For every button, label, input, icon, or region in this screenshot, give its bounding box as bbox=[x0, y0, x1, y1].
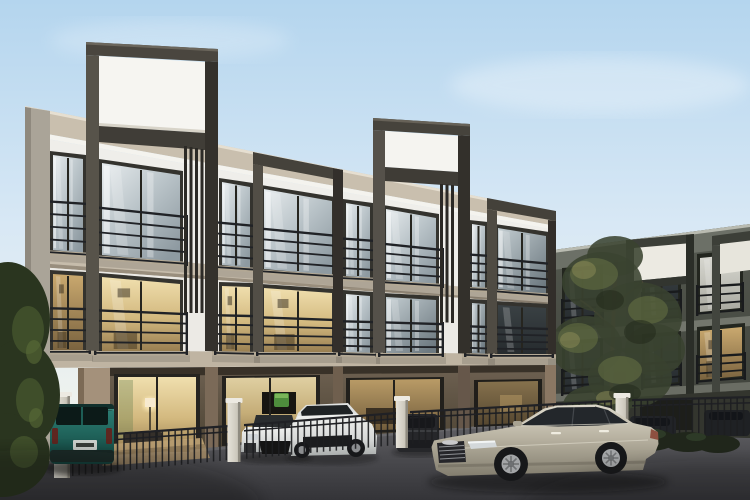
balcony-shadow bbox=[336, 357, 380, 365]
fence-bar bbox=[226, 427, 228, 460]
window-unit bbox=[43, 270, 93, 361]
coupe-grille bbox=[259, 441, 291, 454]
window-unit bbox=[376, 293, 446, 364]
fence-bar bbox=[730, 399, 732, 436]
louver-fins bbox=[440, 184, 454, 323]
sign-panel bbox=[385, 131, 458, 172]
fence-bar bbox=[736, 398, 738, 435]
sedan-mirror bbox=[513, 421, 522, 426]
fence-bar bbox=[278, 423, 280, 456]
fence-bar bbox=[272, 424, 274, 457]
railing-post bbox=[186, 312, 188, 355]
bg-sign-panel bbox=[634, 244, 686, 282]
interior-furniture bbox=[114, 333, 137, 349]
fence-bar bbox=[653, 401, 655, 433]
balcony-shadow bbox=[254, 357, 342, 364]
curtain bbox=[360, 207, 362, 275]
fence-bar bbox=[194, 429, 196, 463]
fence-bar bbox=[412, 413, 414, 444]
interior-picture bbox=[118, 288, 130, 297]
window-unit bbox=[376, 205, 446, 295]
architectural-rendering: Architectural rendering of a modern thre… bbox=[0, 0, 750, 500]
sedan-brand-rings bbox=[442, 440, 458, 445]
fence-bar bbox=[187, 430, 189, 464]
fence-bar bbox=[666, 400, 668, 433]
railing-bar bbox=[94, 352, 188, 354]
railing-post bbox=[696, 285, 698, 316]
curtain bbox=[303, 198, 309, 271]
fence-bar bbox=[316, 420, 318, 452]
curtain bbox=[70, 159, 72, 250]
fence-bar bbox=[692, 400, 694, 435]
window-unit bbox=[92, 273, 190, 362]
pillar-shade bbox=[238, 402, 241, 462]
fence-bar bbox=[219, 428, 221, 461]
railing-post bbox=[744, 352, 746, 380]
fence-bar bbox=[660, 400, 662, 433]
curtain bbox=[347, 296, 349, 350]
window-unit bbox=[254, 185, 342, 286]
fence-bar bbox=[342, 418, 344, 450]
fence-bar bbox=[685, 400, 687, 434]
fence-bar bbox=[380, 415, 382, 446]
interior-picture bbox=[278, 299, 289, 308]
fence-bar bbox=[711, 399, 713, 435]
fence-bar bbox=[704, 399, 706, 434]
fence-bar bbox=[200, 429, 202, 463]
curtain bbox=[415, 301, 419, 351]
fence-bar bbox=[206, 429, 208, 463]
fence-bar bbox=[698, 399, 700, 434]
curtain bbox=[238, 187, 240, 265]
sedan-door-handle bbox=[599, 430, 609, 432]
railing-bar bbox=[256, 353, 340, 355]
cloud bbox=[450, 57, 750, 113]
curtain bbox=[387, 299, 391, 351]
railing-bar bbox=[490, 355, 554, 357]
curtain bbox=[472, 305, 473, 351]
fence-bar bbox=[431, 412, 433, 443]
fence-bar bbox=[418, 413, 420, 444]
van-taillight bbox=[106, 428, 112, 444]
fence-bar bbox=[438, 412, 440, 443]
railing-bar bbox=[378, 354, 444, 356]
balcony-shadow bbox=[488, 359, 556, 366]
railing-post bbox=[442, 322, 444, 357]
fence-bar bbox=[329, 419, 331, 451]
curtain bbox=[480, 306, 481, 352]
window-unit bbox=[488, 301, 556, 365]
window-unit bbox=[488, 224, 556, 305]
fence-bar bbox=[374, 416, 376, 447]
fence-bar bbox=[724, 399, 726, 435]
fence-bar bbox=[444, 411, 446, 442]
sedan-door-handle bbox=[551, 432, 561, 434]
fence-bar bbox=[252, 425, 254, 458]
fence-bar bbox=[425, 412, 427, 443]
fence-bar bbox=[679, 400, 681, 434]
fence-pillar bbox=[394, 396, 410, 448]
railing-post bbox=[561, 369, 563, 396]
balcony-shadow bbox=[92, 356, 190, 363]
railing-bar bbox=[45, 351, 91, 353]
fence-bar bbox=[174, 431, 176, 466]
fence-bar bbox=[259, 425, 261, 458]
window-unit bbox=[43, 151, 93, 264]
railing-post bbox=[696, 355, 698, 384]
van-taillight bbox=[52, 428, 58, 444]
fence-bar bbox=[355, 417, 357, 449]
railing-bar bbox=[45, 340, 91, 342]
fence-bar bbox=[297, 422, 299, 454]
interior-furniture bbox=[58, 332, 67, 348]
sign-panel bbox=[99, 56, 205, 133]
railing-post bbox=[742, 282, 744, 312]
pillar-shade bbox=[406, 400, 409, 448]
bg-sign-panel bbox=[720, 241, 750, 275]
fence-bar bbox=[310, 421, 312, 453]
fence-pillar bbox=[226, 398, 243, 462]
fence-bar bbox=[348, 418, 350, 450]
fence-bar bbox=[284, 423, 286, 456]
fence-bar bbox=[304, 421, 306, 453]
fence-bar bbox=[323, 420, 325, 452]
fence-bar bbox=[181, 430, 183, 465]
fence-bar bbox=[213, 428, 215, 461]
fence-bar bbox=[246, 426, 248, 459]
balcony-shadow bbox=[212, 356, 260, 364]
fence-bar bbox=[361, 417, 363, 449]
fence-bar bbox=[336, 419, 338, 451]
fence-bar bbox=[672, 400, 674, 433]
window-unit bbox=[212, 282, 260, 363]
fence-bar bbox=[743, 398, 745, 436]
balcony-shadow bbox=[376, 358, 446, 365]
interior-picture bbox=[228, 296, 232, 305]
curtain bbox=[360, 297, 362, 351]
window-unit bbox=[254, 284, 342, 363]
coupe-headlight bbox=[246, 434, 258, 440]
fence-bar bbox=[393, 414, 395, 445]
fence-bar bbox=[291, 422, 293, 454]
window-unit bbox=[212, 178, 260, 279]
interior-picture bbox=[59, 284, 64, 293]
scene-canvas: Architectural rendering of a modern thre… bbox=[0, 0, 750, 500]
fence-bar bbox=[265, 424, 267, 457]
curtain bbox=[147, 172, 153, 258]
fence-bar bbox=[368, 416, 370, 447]
window-unit bbox=[92, 159, 190, 273]
fence-bar bbox=[717, 399, 719, 435]
interior-furniture bbox=[226, 333, 234, 349]
fence-bar bbox=[387, 415, 389, 446]
bg-window-unit bbox=[696, 323, 746, 384]
